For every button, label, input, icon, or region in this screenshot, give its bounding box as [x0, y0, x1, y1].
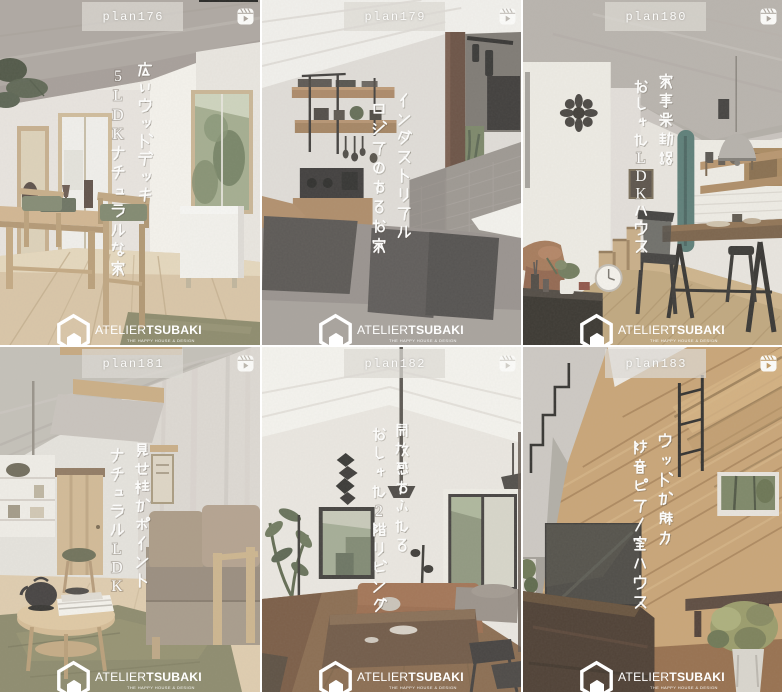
svg-text:K: K	[112, 126, 124, 143]
svg-text:K: K	[111, 578, 123, 595]
svg-text:L: L	[636, 150, 645, 167]
svg-text:5: 5	[114, 68, 122, 85]
svg-text:D: D	[111, 560, 122, 577]
svg-text:K: K	[635, 186, 647, 203]
svg-text:L: L	[113, 88, 122, 105]
svg-text:L: L	[112, 541, 121, 558]
svg-text:2: 2	[375, 503, 383, 520]
svg-text:D: D	[635, 168, 646, 185]
svg-text:D: D	[112, 107, 123, 124]
